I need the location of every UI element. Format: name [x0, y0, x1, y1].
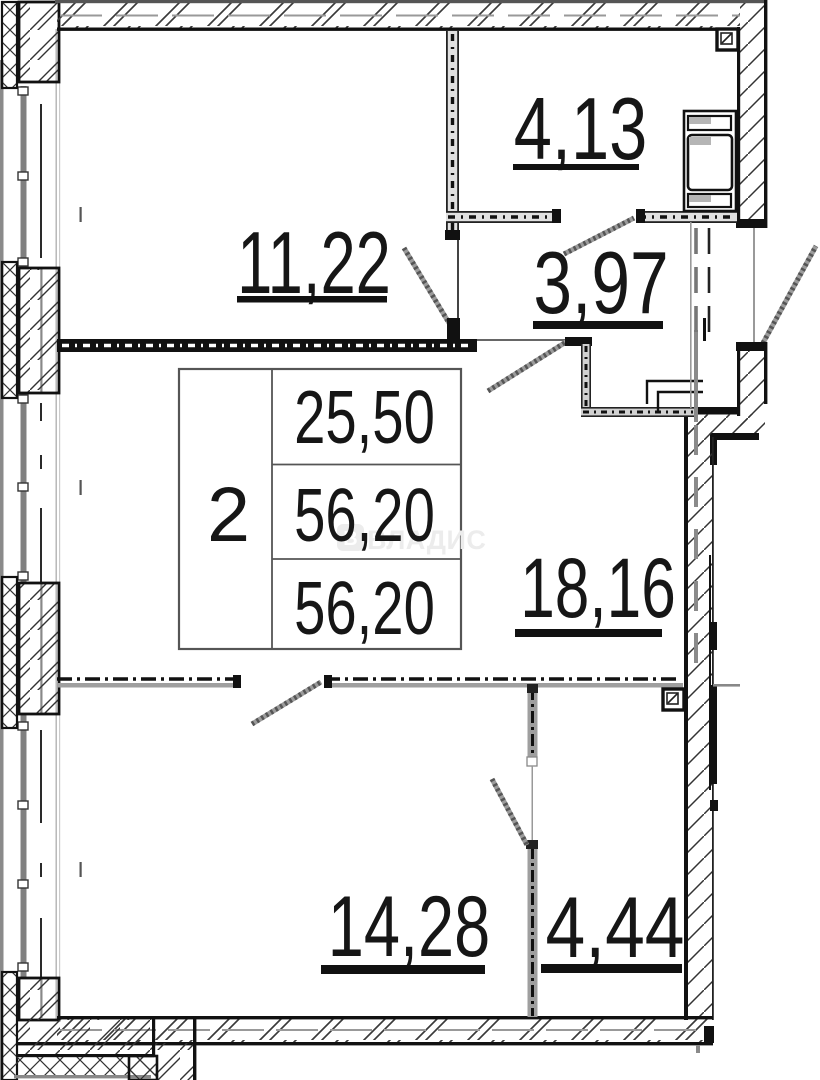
svg-text:3,97: 3,97	[533, 233, 668, 332]
svg-text:4,44: 4,44	[546, 879, 685, 976]
svg-text:56,20: 56,20	[294, 474, 435, 558]
svg-text:25,50: 25,50	[294, 376, 435, 460]
svg-text:4,13: 4,13	[514, 80, 648, 178]
svg-text:56,20: 56,20	[294, 567, 435, 651]
svg-text:18,16: 18,16	[520, 541, 676, 635]
svg-text:2: 2	[207, 472, 250, 558]
svg-text:14,28: 14,28	[328, 879, 490, 975]
